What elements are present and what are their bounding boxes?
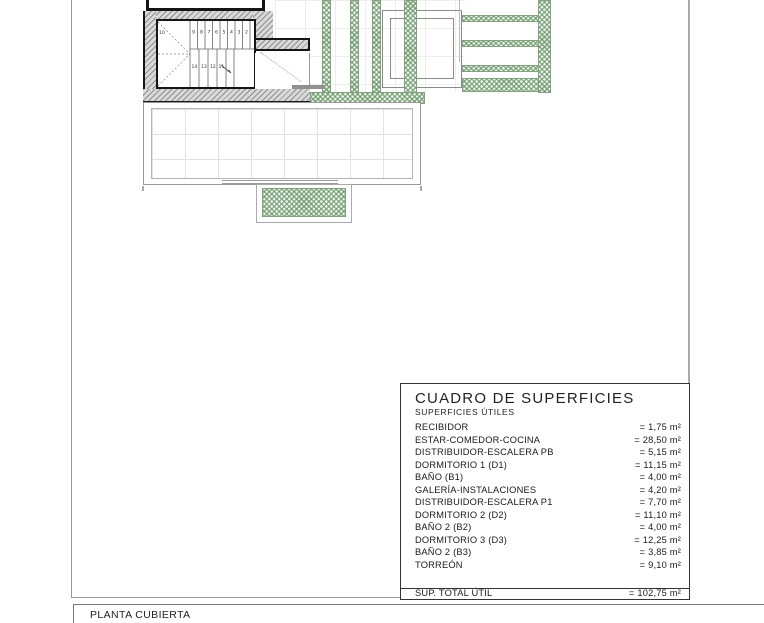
table-total-row: SUP. TOTAL ÚTIL = 102,75 m²	[401, 588, 689, 598]
room-label: BAÑO (B1)	[415, 472, 463, 482]
sheet: 10 9 8 7 6 5 4 3 2 14 13 12 11 CUADRO DE…	[0, 0, 764, 623]
room-area: = 1,75 m²	[640, 422, 681, 432]
table-row: DORMITORIO 2 (D2)= 11,10 m²	[401, 510, 689, 523]
wall-notch	[253, 38, 310, 51]
room-area: = 4,00 m²	[640, 522, 681, 532]
pergola-strip-horizontal	[462, 15, 540, 22]
room-area: = 12,25 m²	[634, 535, 681, 545]
table-row: GALERÍA-INSTALACIONES= 4,20 m²	[401, 485, 689, 498]
table-row: RECIBIDOR= 1,75 m²	[401, 422, 689, 435]
table-row: DORMITORIO 1 (D1)= 11,15 m²	[401, 460, 689, 473]
pergola-strip-vertical	[372, 0, 381, 93]
roof-section-edge	[459, 0, 460, 62]
room-area: = 11,15 m²	[635, 460, 681, 470]
pergola-strip-horizontal	[462, 65, 540, 72]
pergola-strip-vertical-wide	[404, 0, 417, 104]
room-area: = 5,15 m²	[640, 447, 681, 457]
frame-left-edge	[71, 0, 72, 597]
pergola-strip-vertical-right	[538, 0, 551, 93]
room-label: DORMITORIO 2 (D2)	[415, 510, 507, 520]
room-label: DISTRIBUIDOR-ESCALERA P1	[415, 497, 553, 507]
surfaces-table-title: CUADRO DE SUPERFICIES	[415, 390, 634, 407]
svg-text:10: 10	[159, 30, 165, 36]
table-row: DORMITORIO 3 (D3)= 12,25 m²	[401, 535, 689, 548]
total-area: = 102,75 m²	[629, 588, 681, 598]
stair-open-room	[255, 53, 310, 89]
svg-text:5: 5	[223, 30, 226, 36]
torreon-outline-inner	[390, 18, 454, 79]
total-label: SUP. TOTAL ÚTIL	[415, 588, 492, 598]
wall-bottom	[143, 89, 310, 103]
terrace-tick	[420, 186, 422, 191]
room-top-left	[146, 0, 265, 11]
plan-title: PLANTA CUBIERTA	[90, 609, 191, 621]
table-row: DISTRIBUIDOR-ESCALERA P1= 7,70 m²	[401, 497, 689, 510]
table-row: TORREÓN= 9,10 m²	[401, 560, 689, 573]
room-area: = 4,20 m²	[640, 485, 681, 495]
svg-text:8: 8	[200, 30, 203, 36]
surfaces-table: CUADRO DE SUPERFICIES SUPERFICIES ÚTILES…	[400, 383, 690, 600]
room-area: = 3,85 m²	[640, 547, 681, 557]
room-area: = 4,00 m²	[640, 472, 681, 482]
surfaces-table-rows: RECIBIDOR= 1,75 m² ESTAR-COMEDOR-COCINA=…	[401, 422, 689, 572]
planter-vegetation	[262, 188, 346, 217]
surfaces-table-subtitle: SUPERFICIES ÚTILES	[415, 407, 515, 417]
svg-text:4: 4	[230, 30, 233, 36]
table-row: BAÑO 2 (B2)= 4,00 m²	[401, 522, 689, 535]
pergola-strip-horizontal	[462, 40, 540, 47]
room-label: DORMITORIO 1 (D1)	[415, 460, 507, 470]
room-label: ESTAR-COMEDOR-COCINA	[415, 435, 540, 445]
table-row: BAÑO 2 (B3)= 3,85 m²	[401, 547, 689, 560]
room-area: = 7,70 m²	[640, 497, 681, 507]
room-label: TORREÓN	[415, 560, 463, 570]
room-label: GALERÍA-INSTALACIONES	[415, 485, 536, 495]
svg-text:3: 3	[238, 30, 241, 36]
terrace-tiles	[151, 108, 413, 179]
room-area: = 11,10 m²	[635, 510, 681, 520]
pergola-strip-vertical	[350, 0, 359, 93]
svg-text:7: 7	[208, 30, 211, 36]
terrace-tick	[142, 186, 144, 191]
room-area: = 9,10 m²	[640, 560, 681, 570]
room-label: DORMITORIO 3 (D3)	[415, 535, 507, 545]
beam-bar	[292, 85, 325, 89]
svg-text:6: 6	[215, 30, 218, 36]
table-row: DISTRIBUIDOR-ESCALERA PB= 5,15 m²	[401, 447, 689, 460]
stair-direction-arrow	[228, 70, 232, 74]
pergola-strip-vertical	[322, 0, 331, 93]
svg-text:13: 13	[201, 64, 207, 70]
room-label: BAÑO 2 (B2)	[415, 522, 471, 532]
room-label: DISTRIBUIDOR-ESCALERA PB	[415, 447, 554, 457]
titleblock-left-edge	[73, 604, 74, 623]
titleblock-top-edge	[73, 604, 764, 605]
room-label: RECIBIDOR	[415, 422, 468, 432]
svg-text:2: 2	[245, 30, 248, 36]
room-label: BAÑO 2 (B3)	[415, 547, 471, 557]
room-area: = 28,50 m²	[634, 435, 681, 445]
svg-text:14: 14	[192, 64, 198, 70]
stair-treads: 10 9 8 7 6 5 4 3 2 14 13 12 11	[158, 21, 254, 87]
table-row: ESTAR-COMEDOR-COCINA= 28,50 m²	[401, 435, 689, 448]
svg-text:11: 11	[219, 64, 225, 70]
table-row: BAÑO (B1)= 4,00 m²	[401, 472, 689, 485]
svg-text:9: 9	[192, 30, 195, 36]
svg-text:12: 12	[210, 64, 216, 70]
